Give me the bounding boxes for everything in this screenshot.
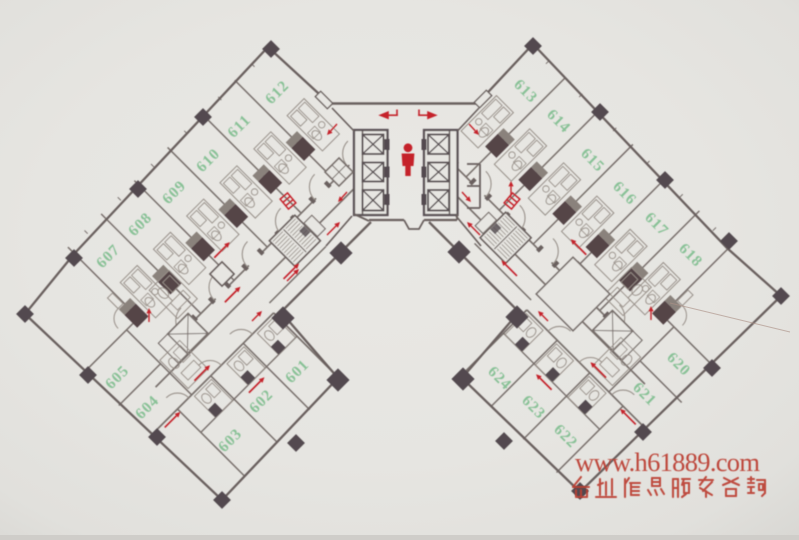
svg-text:www.h61889.com: www.h61889.com [575, 447, 760, 477]
